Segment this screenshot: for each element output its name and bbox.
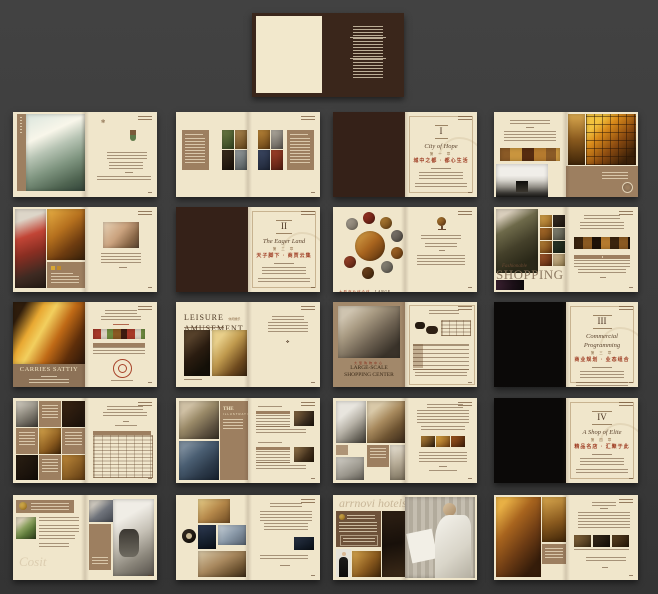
page-number (311, 287, 315, 288)
divider-rule (592, 367, 612, 368)
photo-strip-tile (421, 436, 435, 447)
illustration-title-2: ILLUSTRATION (223, 413, 245, 416)
small-taupe-tile (336, 445, 348, 455)
spread-r4c1-mosaic (13, 398, 157, 483)
tile-text-lines (42, 405, 58, 419)
photo-golden-hall (568, 114, 585, 165)
page-number (148, 575, 152, 576)
caption-lines (586, 557, 626, 563)
page-number (468, 382, 472, 383)
red-subtitle-line (113, 324, 129, 326)
title-rule (41, 376, 57, 377)
spread-r2c1-shopping (13, 207, 157, 292)
divider-rule (602, 567, 608, 568)
paragraph-lines (264, 523, 308, 531)
caption-lines (256, 465, 306, 469)
spread-r3c3-center: 大型购物中心 LARGE-SCALE SHOPPING CENTER (333, 302, 477, 387)
spread-r1c2-photo-band (176, 112, 320, 197)
divider-rule (526, 127, 534, 128)
chapter-text-lines (580, 458, 624, 466)
table-label-lines (115, 425, 137, 428)
photo-shopper-red (15, 209, 46, 288)
chapter-numeral: III (593, 315, 612, 329)
caption-lines (256, 429, 306, 433)
photo-tile (540, 215, 552, 227)
photo-market (258, 130, 270, 149)
page-number (311, 575, 315, 576)
photo-collage-strip (574, 237, 630, 249)
bar-text-lines (31, 503, 69, 510)
brand-mark (619, 402, 633, 406)
photo-man-newspaper (405, 497, 475, 578)
chapter-title-cn: 天子脚下 · 商贾云集 (252, 254, 316, 260)
chapter-title-block: III Commercial Programming 第 三 章 商业规划 · … (570, 311, 634, 387)
paragraph-lines (580, 222, 624, 230)
plate-inner-ring (118, 364, 127, 373)
divider-rule (123, 421, 129, 422)
photo-circle (391, 230, 403, 242)
photo-crowd (271, 130, 283, 149)
photo-lounge-bar (184, 330, 210, 376)
page-number (148, 192, 152, 193)
photo-drafting-table (179, 401, 219, 439)
chapter-label-cn: 第 三 章 (570, 352, 634, 356)
chapter-text-lines (576, 469, 628, 474)
photo-circle (380, 217, 392, 229)
chapter-cover-page-black (494, 398, 566, 483)
chapter-text-lines (576, 382, 628, 387)
panel-text-lines (92, 557, 108, 566)
toc-divider (350, 37, 386, 38)
block-heading-rule (290, 134, 308, 135)
group-label-lines (258, 406, 282, 409)
table-header-divider (602, 256, 603, 258)
page-number (148, 478, 152, 479)
chapter-numeral: II (276, 220, 292, 234)
bird-ornament-icon: ✻ (101, 120, 105, 125)
mini-data-table (441, 320, 471, 336)
spread-r3c2-leisure: LEISURE 休闲娱乐 AMUSEMENT ✤ (176, 302, 320, 387)
hotel-watermark: arrnovi hotels (339, 497, 407, 509)
photo-circle (362, 267, 374, 279)
photo-luxury-car (496, 164, 548, 197)
photo-poster (258, 150, 270, 170)
photo-caption-rule (184, 379, 202, 380)
photo-shop-interior (47, 209, 85, 260)
page-number (311, 478, 315, 479)
brand-mark (458, 116, 472, 120)
photo-waiter (336, 549, 351, 577)
heading-lines (510, 120, 550, 125)
seal-badge-icon (622, 182, 633, 193)
photo-buffet-scene (496, 497, 541, 577)
photo-tile (540, 228, 552, 240)
panel-text-lines (223, 419, 243, 429)
site-plan-blob (426, 326, 438, 334)
heading-lines (270, 503, 302, 507)
intro-text-lines (107, 152, 147, 160)
flower-shadow-shape (119, 529, 139, 557)
divider-rule (431, 168, 451, 169)
photo-circle (344, 256, 356, 268)
chapter-label-cn: 第 一 章 (409, 153, 473, 157)
spread-r2c4-fashion: Fashionable SHOPPING (494, 207, 638, 292)
brand-mark (458, 402, 472, 406)
paragraph-lines (101, 253, 141, 263)
chapter-cover-page (176, 207, 248, 292)
list-lines (39, 517, 79, 523)
chapter-title-cn: 商业规划 · 业态组合 (570, 358, 634, 364)
page-number (468, 478, 472, 479)
list-lines (39, 535, 75, 541)
heading-lines (584, 215, 620, 220)
spread-r1c4-luxury (494, 112, 638, 197)
paragraph-lines (419, 452, 467, 462)
photo-violin (39, 428, 61, 454)
chapter-label-cn: 第 二 章 (252, 248, 316, 252)
block-text-lines (545, 548, 563, 559)
table-rows (574, 260, 630, 267)
site-plan-blob (415, 322, 425, 329)
block-heading-rule (51, 273, 73, 274)
heading-lines (425, 243, 457, 247)
chapter-numeral: I (435, 125, 448, 139)
divider-rule (119, 267, 127, 268)
gold-globe-logo-icon (339, 514, 345, 520)
intro-paragraph-lines (97, 176, 151, 182)
gold-tile-icon (57, 266, 61, 270)
cover-toc-text-lines (353, 26, 383, 80)
carries-title: CARRIES SATTIY (13, 367, 85, 374)
photo-espresso-dark (382, 511, 405, 577)
band-text-lines (29, 379, 69, 384)
photo-dish-tile (574, 535, 591, 547)
chapter-title-block: II The Eager Land 第 二 章 天子脚下 · 商贾云集 (252, 216, 316, 283)
photo-hands (16, 517, 36, 539)
spread-chapter-3: III Commercial Programming 第 三 章 商业规划 · … (494, 302, 638, 387)
intro-text-lines (109, 162, 143, 170)
title-rule (184, 327, 224, 328)
list-lines (39, 543, 69, 547)
paragraph-lines (504, 131, 556, 143)
chapter-title-block: I City of Hope 第 一 章 城中之都 · 都心生活 (409, 121, 473, 188)
brand-mark (619, 306, 633, 310)
complex-caption: 大型商业综合体 LARGE COMMERCIAL COMPLEX (339, 281, 403, 292)
block-text-lines (51, 276, 79, 285)
page-number (629, 478, 633, 479)
brochure-showcase-board: ✻ I City of Hope 第 一 章 (0, 0, 658, 594)
photo-golden-bar (542, 497, 566, 542)
chapter-title-cn: 精品名店 · 汇聚于此 (570, 445, 634, 451)
table-header (256, 447, 290, 450)
photo-sign (271, 150, 283, 170)
spread-r5c3-hotel-service: arrnovi hotels (333, 495, 477, 580)
photo-tile (553, 228, 565, 240)
photo-dark-interior (222, 150, 234, 170)
vertical-text-lines (20, 117, 22, 135)
photo-skyscraper (26, 114, 85, 191)
brand-mark (301, 499, 315, 503)
page-number (311, 192, 315, 193)
callout-text-lines (343, 538, 375, 543)
photo-restaurant-warm (352, 551, 381, 577)
spread-chapter-2: II The Eager Land 第 二 章 天子脚下 · 商贾云集 (176, 207, 320, 292)
photo-tile (540, 241, 552, 253)
block-text-lines (290, 138, 310, 164)
photo-night-building (198, 525, 216, 549)
brand-mark (619, 211, 633, 215)
chapter-script-title: Commercial Programming (570, 332, 634, 350)
photo-circle (381, 261, 393, 273)
paragraph-lines (578, 512, 630, 528)
photo-product-2 (294, 447, 314, 462)
waiter-head (342, 552, 346, 556)
divider-rule (600, 277, 606, 278)
heading-lines (272, 316, 304, 320)
brand-mark (301, 306, 315, 310)
divider-rule (439, 250, 445, 251)
page-number (629, 575, 633, 576)
chapter-text-lines (419, 172, 463, 180)
watermark-text: Cosit (19, 555, 46, 568)
photo-sculpture-bw (336, 401, 366, 443)
photo-restaurant-gold (212, 330, 247, 376)
chapter-script-title: City of Hope (409, 142, 473, 151)
watch-face (186, 533, 192, 539)
block-text-lines (370, 448, 386, 458)
photo-circle (363, 212, 375, 224)
brand-mark (138, 402, 152, 406)
spread-r2c3-complex: 大型商业综合体 LARGE COMMERCIAL COMPLEX (333, 207, 477, 292)
photo-food-strip (93, 329, 145, 339)
brand-mark (301, 116, 315, 120)
spread-r3c1-dining: CARRIES SATTIY (13, 302, 157, 387)
spread-cover (252, 13, 404, 97)
list-lines (39, 525, 79, 533)
newspaper-shape (406, 529, 438, 564)
globe-trophy-icon (437, 217, 446, 226)
page-number (468, 287, 472, 288)
photo-chef-flame (13, 302, 85, 364)
white-shirt-shape (435, 515, 471, 578)
photo-circle (391, 247, 403, 259)
photo-man-reading (16, 401, 38, 427)
photo-flowers-bw (113, 499, 154, 576)
divider-rule (592, 454, 612, 455)
paragraph-lines (260, 511, 312, 521)
brand-mark (138, 211, 152, 215)
heading-lines (421, 235, 461, 241)
chapter-label-cn: 第 四 章 (570, 439, 634, 443)
photo-watch-circle (182, 529, 196, 543)
photo-dish-tile (593, 535, 610, 547)
paragraph-lines (421, 426, 465, 432)
emblem-badge-icon (130, 130, 136, 141)
logo-caption-lines (111, 380, 133, 383)
tile-text-lines (19, 432, 35, 446)
paragraph-lines (268, 322, 308, 332)
spread-r4c3-collage (333, 398, 477, 483)
data-table (93, 435, 153, 478)
divider-rule (274, 263, 294, 264)
page-number (468, 192, 472, 193)
brand-mark (138, 306, 152, 310)
photo-strip-tile (451, 436, 465, 447)
photo-technician (179, 441, 219, 480)
tile-text-lines (42, 459, 58, 472)
paragraph-lines (417, 410, 469, 424)
brand-mark (458, 306, 472, 310)
chapter-text-lines (415, 183, 467, 188)
brand-mark (458, 211, 472, 215)
table-header (256, 411, 290, 414)
heading-lines (101, 316, 141, 322)
table-caption-lines (415, 372, 467, 376)
spread-chapter-1: I City of Hope 第 一 章 城中之都 · 都心生活 (333, 112, 477, 197)
page-number (148, 382, 152, 383)
photo-tile (553, 241, 565, 253)
brand-mark (301, 211, 315, 215)
gold-globe-logo-icon (19, 502, 27, 510)
photo-atrium (198, 499, 230, 523)
photo-airplane-night (294, 537, 314, 550)
largescale-line1: LARGE-SCALE (333, 366, 405, 372)
leisure-title-line1: LEISURE (184, 313, 224, 322)
photo-dark-food (62, 401, 85, 427)
photo-tile (553, 254, 565, 266)
panel-callout-box (340, 535, 378, 546)
divider-rule (600, 508, 608, 509)
heading-lines (105, 310, 137, 315)
photo-circle (346, 218, 358, 230)
chapter-cover-page-black (494, 302, 566, 387)
divider-rule (439, 466, 447, 467)
photo-dark-interior (16, 455, 38, 480)
cover-front-page (256, 16, 322, 93)
photo-caption-lines (574, 549, 629, 552)
group-label-lines (258, 442, 282, 445)
note-lines (578, 269, 626, 274)
waiter-suit (339, 557, 348, 577)
spread-r5c4-buffet (494, 495, 638, 580)
panel-text-lines (339, 522, 377, 532)
restaurant-plate-logo (113, 359, 132, 378)
divider-rule (125, 172, 133, 173)
table-rows (256, 451, 290, 463)
spread-r5c1-consulting: Cosit (13, 495, 157, 580)
photo-tile (540, 254, 552, 266)
gold-tile-icon (51, 266, 55, 270)
photo-tile (553, 215, 565, 227)
table-header (93, 343, 145, 347)
car-grille (516, 181, 528, 192)
paragraph-lines (417, 255, 465, 265)
page-number (629, 287, 633, 288)
photo-city (235, 150, 247, 170)
spread-r4c2-illustration: THE ILLUSTRATION (176, 398, 320, 483)
leisure-title-cn: 休闲娱乐 (228, 317, 240, 321)
heading-lines (107, 406, 143, 411)
caption-lines (260, 555, 308, 561)
photo-business-people (338, 306, 400, 358)
photo-street (235, 130, 247, 149)
chapter-cover-page (333, 112, 405, 197)
page-number (148, 287, 152, 288)
photo-product-1 (294, 411, 314, 426)
spread-r1c1-intro: ✻ (13, 112, 157, 197)
spread-r5c2-architecture (176, 495, 320, 580)
photo-curved-road (198, 551, 246, 577)
brand-mark (619, 499, 633, 503)
illustration-title-block: THE ILLUSTRATION (223, 407, 245, 429)
photo-circle-market (355, 231, 385, 261)
insect-ornament-icon: ✤ (286, 340, 289, 344)
spread-chapter-4: IV A Shop of Elite 第 四 章 精品名店 · 汇聚于此 (494, 398, 638, 483)
chapter-title-block: IV A Shop of Elite 第 四 章 精品名店 · 汇聚于此 (570, 407, 634, 474)
heading-lines (103, 412, 147, 418)
table-rows (93, 347, 145, 355)
toc-divider (350, 58, 386, 59)
largescale-line2: SHOPPING CENTER (333, 373, 405, 379)
photo-stained-glass-ceiling (586, 114, 636, 165)
chapter-numeral: IV (592, 411, 612, 425)
photo-gray (336, 457, 364, 480)
chapter-text-lines (258, 278, 310, 283)
photo-plants (222, 130, 234, 149)
chapter-script-title: A Shop of Elite (570, 428, 634, 437)
chapter-text-lines (580, 371, 624, 379)
heading-lines (429, 310, 459, 316)
photo-strip-tile (436, 436, 450, 447)
heading-lines (592, 502, 616, 506)
block-heading-rule (185, 134, 203, 135)
page-number (311, 382, 315, 383)
brand-mark (138, 116, 152, 120)
block-text-lines (185, 138, 205, 164)
chapter-script-title: The Eager Land (252, 237, 316, 246)
brand-mark (301, 402, 315, 406)
photo-curved-architecture (390, 445, 405, 480)
chapter-text-lines (262, 267, 306, 275)
photo-building-render (218, 525, 246, 545)
globe-base (438, 229, 446, 230)
chapter-title-cn: 城中之都 · 都心生活 (409, 159, 473, 165)
divider-rule (280, 565, 290, 566)
photo-dish-tile (612, 535, 629, 547)
largescale-title-block: 大型购物中心 LARGE-SCALE SHOPPING CENTER (333, 362, 405, 378)
data-table-rows (413, 344, 469, 370)
photo-meeting (367, 401, 405, 443)
photo-warm-food (62, 455, 85, 480)
caption-lines (429, 470, 457, 473)
photo-lobby-panorama (500, 148, 560, 161)
tile-text-lines (65, 432, 82, 446)
band-text-lines (602, 172, 628, 180)
shopping-title: SHOPPING (496, 268, 564, 281)
panel-heading-lines (347, 515, 375, 519)
complex-caption-cn: 大型商业综合体 (339, 290, 371, 292)
photo-spa (103, 222, 139, 248)
table-rows (256, 415, 290, 427)
